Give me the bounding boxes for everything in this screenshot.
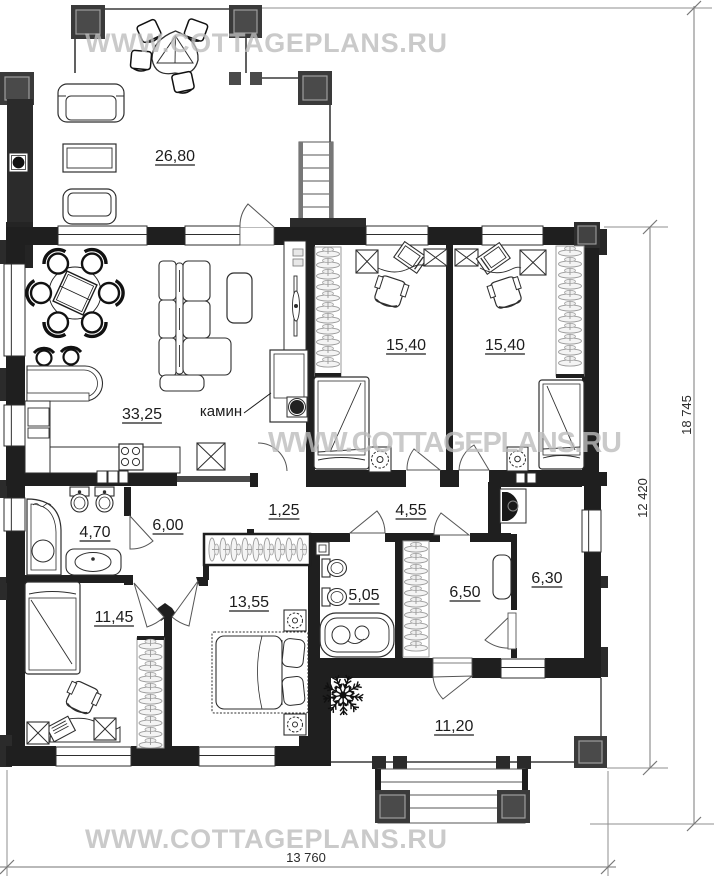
svg-text:33,25: 33,25 <box>122 406 162 423</box>
svg-text:11,45: 11,45 <box>95 609 134 626</box>
svg-text:6,30: 6,30 <box>531 570 562 587</box>
svg-text:WWW.COTTAGEPLANS.RU: WWW.COTTAGEPLANS.RU <box>85 824 447 854</box>
svg-text:6,00: 6,00 <box>152 517 183 534</box>
svg-text:6,50: 6,50 <box>449 584 480 601</box>
svg-text:5,05: 5,05 <box>348 587 379 604</box>
svg-text:1,25: 1,25 <box>268 502 299 519</box>
svg-text:13,55: 13,55 <box>229 594 269 611</box>
svg-text:4,55: 4,55 <box>395 502 426 519</box>
svg-text:4,70: 4,70 <box>79 524 110 541</box>
svg-text:WWW.COTTAGEPLANS.RU: WWW.COTTAGEPLANS.RU <box>85 28 447 58</box>
svg-text:18 745: 18 745 <box>679 395 694 435</box>
svg-text:11,20: 11,20 <box>435 718 474 735</box>
svg-text:15,40: 15,40 <box>386 337 426 354</box>
svg-text:12 420: 12 420 <box>635 478 650 518</box>
svg-text:15,40: 15,40 <box>485 337 525 354</box>
svg-text:WWW.COTTAGEPLANS.RU: WWW.COTTAGEPLANS.RU <box>268 427 622 459</box>
svg-text:камин: камин <box>200 403 242 420</box>
svg-text:26,80: 26,80 <box>155 148 195 165</box>
